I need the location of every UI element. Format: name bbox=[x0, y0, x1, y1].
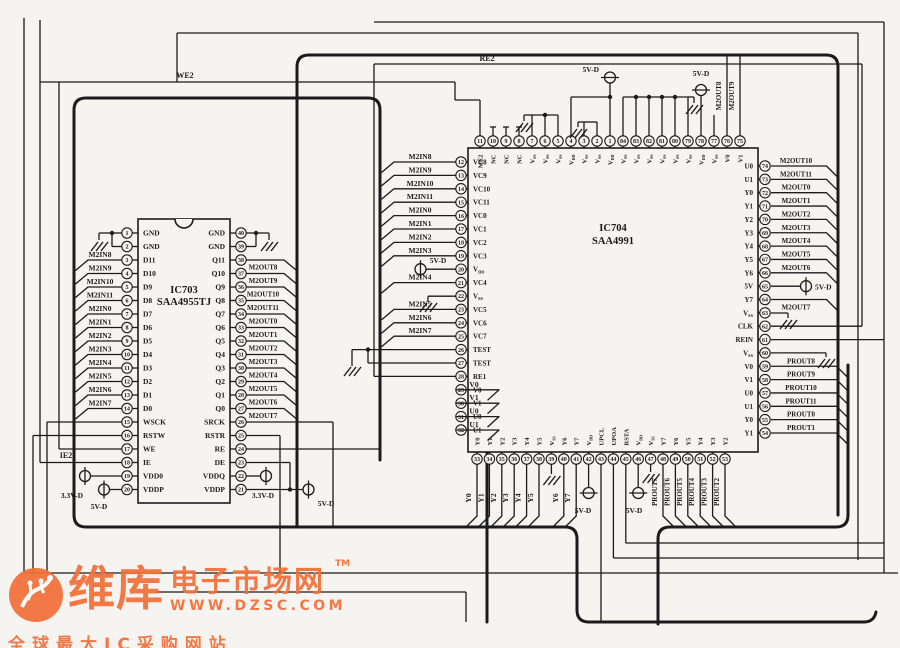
pin-number: 4 bbox=[570, 139, 573, 145]
net-label: M2OUT6 bbox=[249, 399, 278, 407]
pin-number: 61 bbox=[762, 338, 768, 344]
watermark-brand: 维库 bbox=[68, 561, 164, 619]
pin-name: Y6 bbox=[673, 437, 680, 446]
pin-number: 78 bbox=[698, 139, 704, 145]
pin-name: VC7 bbox=[473, 333, 487, 341]
pin-number: 32 bbox=[458, 428, 464, 434]
pin-number: 56 bbox=[762, 405, 768, 411]
pin-name: Q9 bbox=[215, 283, 225, 292]
pin-number: 37 bbox=[238, 272, 244, 278]
pin-number: 42 bbox=[586, 457, 592, 463]
pin-name: GND bbox=[143, 229, 160, 238]
pin-number: 35 bbox=[238, 299, 244, 305]
pin-name: Q0 bbox=[215, 404, 225, 413]
supply-icon bbox=[80, 467, 91, 485]
net-label: PROUT10 bbox=[785, 384, 817, 392]
net-label: M2OUT5 bbox=[249, 385, 278, 393]
pin-name: VDD0 bbox=[143, 472, 163, 481]
pin-number: 19 bbox=[124, 474, 130, 480]
net-label: M2IN7 bbox=[409, 326, 432, 335]
net-label: V0 bbox=[469, 380, 478, 389]
pin-number: 83 bbox=[633, 139, 639, 145]
net-label: M2IN9 bbox=[89, 264, 112, 273]
pin-name: VC10 bbox=[473, 185, 491, 193]
pin-number: 31 bbox=[238, 353, 244, 359]
pin-name: VC6 bbox=[473, 319, 487, 327]
pin-number: 5 bbox=[557, 139, 560, 145]
net-label: Y3 bbox=[501, 493, 510, 502]
pin-name: U0 bbox=[744, 389, 753, 397]
net-label: M2OUT6 bbox=[782, 264, 811, 272]
schematic-canvas: IC703SAA4955TJIC704SAA49911GND2GND3D11M2… bbox=[0, 0, 900, 648]
net-label: M2IN4 bbox=[89, 358, 112, 367]
junction-dot bbox=[673, 95, 677, 99]
pin-number: 1 bbox=[126, 231, 129, 237]
pin-number: 40 bbox=[238, 231, 244, 237]
supply-icon bbox=[601, 72, 619, 83]
wire bbox=[725, 465, 736, 528]
net-label: M2OUT0 bbox=[782, 184, 811, 192]
pin-number: 31 bbox=[458, 415, 464, 421]
supply-label: 3.3V-D bbox=[252, 491, 275, 500]
supply-label: 3.3V-D bbox=[61, 491, 84, 500]
pin-name: Y2 bbox=[723, 438, 730, 446]
pin-number: 21 bbox=[458, 281, 464, 287]
pin-number: 40 bbox=[561, 457, 567, 463]
supply-label: 5V-D bbox=[575, 506, 592, 515]
wire bbox=[382, 336, 456, 347]
pin-number: 74 bbox=[762, 164, 768, 170]
pin-name: V1 bbox=[744, 376, 753, 384]
pin-number: 77 bbox=[711, 139, 717, 145]
net-label: M2OUT11 bbox=[247, 304, 279, 312]
net-label: M2OUT7 bbox=[782, 304, 811, 312]
pin-number: 33 bbox=[474, 457, 480, 463]
pin-name: VC5 bbox=[473, 306, 487, 314]
pin-number: 6 bbox=[544, 139, 547, 145]
pin-number: 39 bbox=[238, 245, 244, 251]
pin-name: Y5 bbox=[744, 256, 753, 264]
pin-number: 22 bbox=[238, 474, 244, 480]
pin-name: Y0 bbox=[744, 416, 753, 424]
dzsc-logo-icon bbox=[8, 567, 64, 627]
pin-name: ME2 bbox=[478, 155, 485, 169]
pin-number: 32 bbox=[238, 339, 244, 345]
pin-number: 11 bbox=[477, 139, 483, 145]
pin-number: 54 bbox=[762, 431, 768, 437]
pin-number: 76 bbox=[724, 139, 730, 145]
pin-name: Q5 bbox=[215, 337, 225, 346]
pin-name: VDDP bbox=[143, 485, 164, 494]
pin-name: Y3 bbox=[744, 229, 753, 237]
net-label: Y0 bbox=[464, 493, 473, 502]
pin-name: VC1 bbox=[473, 226, 487, 234]
net-label: RE2 bbox=[479, 54, 494, 63]
pin-name: D0 bbox=[143, 404, 152, 413]
pin-number: 11 bbox=[124, 366, 130, 372]
pin-name: Q3 bbox=[215, 364, 225, 373]
pin-name: Q11 bbox=[212, 256, 225, 265]
pin-name: Y6 bbox=[744, 269, 753, 277]
net-label: Y5 bbox=[526, 493, 535, 502]
pin-name: Q2 bbox=[215, 377, 225, 386]
supply-icon bbox=[580, 488, 598, 499]
net-label: PROUT9 bbox=[787, 371, 816, 379]
pin-number: 47 bbox=[648, 457, 654, 463]
net-label: M2OUT2 bbox=[249, 345, 278, 353]
pin-number: 14 bbox=[124, 407, 130, 413]
pin-number: 25 bbox=[238, 434, 244, 440]
supply-label: 5V-D bbox=[582, 65, 599, 74]
pin-number: 58 bbox=[762, 378, 768, 384]
pin-number: 18 bbox=[458, 241, 464, 247]
net-label: M2IN7 bbox=[89, 399, 112, 408]
pin-number: 37 bbox=[524, 457, 530, 463]
net-label: M2OUT3 bbox=[782, 224, 811, 232]
pin-number: 30 bbox=[238, 366, 244, 372]
pin-name: VC11 bbox=[473, 199, 490, 207]
pin-number: 8 bbox=[126, 326, 129, 332]
pin-number: 46 bbox=[635, 457, 641, 463]
pin-number: 79 bbox=[685, 139, 691, 145]
pin-number: 16 bbox=[124, 434, 130, 440]
net-label: M2OUT9 bbox=[728, 81, 736, 110]
pin-name: Q6 bbox=[215, 323, 225, 332]
pin-number: 1 bbox=[609, 139, 612, 145]
net-label: M2OUT10 bbox=[247, 291, 280, 299]
pin-number: 35 bbox=[499, 457, 505, 463]
pin-number: 25 bbox=[458, 334, 464, 340]
pin-number: 26 bbox=[238, 420, 244, 426]
pin-name: Y1 bbox=[744, 430, 753, 438]
pin-number: 45 bbox=[623, 457, 629, 463]
pin-number: 67 bbox=[762, 258, 768, 264]
net-label: M2IN0 bbox=[409, 206, 432, 215]
pin-name: 5V bbox=[744, 283, 753, 291]
net-label: PROUT11 bbox=[785, 397, 817, 405]
pin-name: GND bbox=[143, 242, 160, 251]
net-label: M2IN10 bbox=[407, 179, 434, 188]
net-label: PROUT6 bbox=[663, 478, 671, 507]
pin-name: Y1 bbox=[744, 203, 753, 211]
schematic-page: IC703SAA4955TJIC704SAA49911GND2GND3D11M2… bbox=[0, 0, 900, 648]
pin-number: 9 bbox=[505, 139, 508, 145]
pin-number: 80 bbox=[672, 139, 678, 145]
pin-name: Y7 bbox=[661, 437, 668, 446]
pin-name: NC bbox=[504, 154, 511, 164]
ic703-part: SAA4955TJ bbox=[157, 297, 211, 308]
pin-number: 15 bbox=[458, 200, 464, 206]
net-label: M2IN2 bbox=[89, 331, 112, 340]
net-label: PROUT5 bbox=[676, 478, 684, 507]
supply-icon bbox=[692, 85, 710, 96]
junction-dot bbox=[254, 231, 258, 235]
pin-number: 24 bbox=[458, 321, 464, 327]
pin-name: D10 bbox=[143, 269, 156, 278]
wire bbox=[382, 283, 456, 294]
pin-number: 43 bbox=[598, 457, 604, 463]
pin-name: Y7 bbox=[744, 296, 753, 304]
pin-number: 7 bbox=[531, 139, 534, 145]
net-label: WE2 bbox=[176, 71, 193, 80]
ground-icon bbox=[780, 320, 797, 329]
pin-number: 55 bbox=[762, 418, 768, 424]
pin-name: Y3 bbox=[710, 437, 717, 446]
pin-name: Y2 bbox=[744, 216, 753, 224]
pin-name: VC2 bbox=[473, 239, 487, 247]
net-label: U1 bbox=[469, 420, 478, 429]
net-label: M2OUT9 bbox=[249, 277, 278, 285]
pin-number: 69 bbox=[762, 231, 768, 237]
supply-label: 5V-D bbox=[626, 506, 643, 515]
watermark-tagline: 全球最大IC采购网站 bbox=[8, 630, 348, 648]
net-label: M2OUT10 bbox=[780, 157, 813, 165]
pin-name: D7 bbox=[143, 310, 152, 319]
net-label: M2OUT5 bbox=[782, 250, 811, 258]
watermark-tm: TM bbox=[335, 559, 350, 569]
pin-number: 23 bbox=[238, 461, 244, 467]
supply-icon bbox=[629, 488, 647, 499]
net-label: M2OUT4 bbox=[249, 372, 278, 380]
pin-name: Y0 bbox=[744, 189, 753, 197]
net-label: Y6 bbox=[551, 493, 560, 502]
pin-number: 51 bbox=[697, 457, 703, 463]
pin-number: 12 bbox=[124, 380, 130, 386]
pin-name: D9 bbox=[143, 283, 152, 292]
pin-name: RSTR bbox=[205, 431, 226, 440]
pin-name: D5 bbox=[143, 337, 152, 346]
pin-number: 17 bbox=[458, 227, 464, 233]
pin-name: UPOA bbox=[611, 427, 618, 446]
pin-name: Y6 bbox=[561, 437, 568, 446]
pin-name: UPCL bbox=[599, 427, 606, 445]
pin-number: 49 bbox=[672, 457, 678, 463]
net-label: M2OUT4 bbox=[782, 237, 811, 245]
pin-number: 57 bbox=[762, 391, 768, 397]
net-label: U0 bbox=[469, 407, 478, 416]
pin-number: 29 bbox=[458, 388, 464, 394]
junction-dot bbox=[543, 113, 547, 117]
net-label: M2OUT2 bbox=[782, 210, 811, 218]
net-label: Y2 bbox=[489, 493, 498, 502]
pin-number: 29 bbox=[238, 380, 244, 386]
pin-number: 10 bbox=[490, 139, 496, 145]
pin-number: 52 bbox=[710, 457, 716, 463]
pin-number: 2 bbox=[596, 139, 599, 145]
supply-label: 5V-D bbox=[91, 502, 108, 511]
pin-number: 13 bbox=[458, 174, 464, 180]
pin-number: 63 bbox=[762, 311, 768, 317]
pin-number: 20 bbox=[124, 488, 130, 494]
supply-label: 5V-D bbox=[318, 499, 335, 508]
pin-number: 59 bbox=[762, 364, 768, 370]
pin-number: 71 bbox=[762, 204, 768, 210]
net-label: PROUT2 bbox=[713, 478, 721, 507]
pin-number: 28 bbox=[458, 375, 464, 381]
pin-number: 66 bbox=[762, 271, 768, 277]
pin-number: 73 bbox=[762, 178, 768, 184]
net-label: M2OUT3 bbox=[249, 358, 278, 366]
pin-number: 34 bbox=[238, 312, 244, 318]
wire bbox=[771, 433, 848, 444]
pin-number: 24 bbox=[238, 447, 244, 453]
pin-name: Y5 bbox=[685, 437, 692, 446]
pin-name: WSCK bbox=[143, 418, 166, 427]
pin-name: NC bbox=[491, 154, 498, 164]
junction-dot bbox=[110, 231, 114, 235]
pin-number: 50 bbox=[685, 457, 691, 463]
pin-name: GND bbox=[208, 242, 225, 251]
pin-name: Q1 bbox=[215, 391, 225, 400]
pin-number: 44 bbox=[610, 457, 616, 463]
pin-number: 22 bbox=[458, 294, 464, 300]
pin-number: 19 bbox=[458, 254, 464, 260]
net-label: M2IN11 bbox=[407, 192, 434, 201]
pin-number: 8 bbox=[518, 139, 521, 145]
pin-number: 9 bbox=[126, 339, 129, 345]
net-label: Y1 bbox=[476, 493, 485, 502]
pin-number: 39 bbox=[548, 457, 554, 463]
pin-name: V0 bbox=[725, 155, 732, 163]
pin-number: 33 bbox=[238, 326, 244, 332]
net-label: M2OUT8 bbox=[715, 81, 723, 110]
pin-name: VC4 bbox=[473, 279, 487, 287]
pin-number: 7 bbox=[126, 312, 129, 318]
net-label: M2IN3 bbox=[409, 246, 432, 255]
pin-number: 27 bbox=[458, 361, 464, 367]
net-label: M2IN8 bbox=[409, 152, 432, 161]
junction-dot bbox=[288, 487, 292, 491]
pin-number: 28 bbox=[238, 393, 244, 399]
pin-number: 75 bbox=[737, 139, 743, 145]
pin-number: 27 bbox=[238, 407, 244, 413]
pin-number: 12 bbox=[458, 160, 464, 166]
net-label: M2IN1 bbox=[409, 219, 432, 228]
pin-name: D2 bbox=[143, 377, 152, 386]
pin-name: Y4 bbox=[744, 243, 753, 251]
pin-number: 60 bbox=[762, 351, 768, 357]
pin-name: Q7 bbox=[215, 310, 225, 319]
pin-name: IE bbox=[143, 458, 151, 467]
pin-name: V0 bbox=[744, 363, 753, 371]
pin-name: GND bbox=[208, 229, 225, 238]
pin-name: Q4 bbox=[215, 350, 225, 359]
ic704-ref: IC704 bbox=[599, 223, 627, 234]
pin-name: RE bbox=[215, 445, 225, 454]
net-label: M2IN2 bbox=[409, 232, 432, 241]
watermark-url: WWW.DZSC.COM bbox=[170, 598, 346, 614]
net-label: M2OUT1 bbox=[249, 331, 278, 339]
pin-name: Y4 bbox=[524, 437, 531, 446]
pin-name: REIN bbox=[735, 336, 753, 344]
pin-number: 2 bbox=[126, 245, 129, 251]
pin-name: DE bbox=[215, 458, 225, 467]
pin-name: VC0 bbox=[473, 212, 487, 220]
pin-number: 70 bbox=[762, 218, 768, 224]
ground-icon bbox=[261, 242, 278, 251]
pin-number: 36 bbox=[511, 457, 517, 463]
pin-name: D8 bbox=[143, 296, 152, 305]
junction-dot bbox=[647, 95, 651, 99]
pin-number: 6 bbox=[126, 299, 129, 305]
net-label: M2IN8 bbox=[89, 250, 112, 259]
pin-name: VC3 bbox=[473, 252, 487, 260]
wire bbox=[76, 409, 122, 420]
net-label: M2IN1 bbox=[89, 318, 112, 327]
ground-icon bbox=[543, 476, 560, 485]
supply-icon bbox=[99, 481, 110, 499]
pin-number: 36 bbox=[238, 285, 244, 291]
net-label: PROUT1 bbox=[787, 424, 816, 432]
net-label: PROUT8 bbox=[787, 357, 816, 365]
net-label: V1 bbox=[469, 393, 478, 402]
pin-name: Y1 bbox=[487, 438, 494, 446]
ic704-body bbox=[468, 148, 758, 452]
net-label: PROUT3 bbox=[701, 478, 709, 507]
ic703-ref: IC703 bbox=[170, 285, 197, 296]
pin-number: 20 bbox=[458, 267, 464, 273]
pin-name: D1 bbox=[143, 391, 152, 400]
supply-icon bbox=[801, 277, 812, 295]
supply-label: 5V-D bbox=[815, 283, 832, 292]
pin-name: D4 bbox=[143, 350, 152, 359]
net-label: Y7 bbox=[563, 493, 572, 502]
pin-name: V1 bbox=[738, 155, 745, 163]
watermark: 维库 电子市场网 TM WWW.DZSC.COM 全球最大IC采购网站 bbox=[8, 561, 348, 648]
junction-dot bbox=[608, 95, 612, 99]
pin-name: U0 bbox=[744, 163, 753, 171]
pin-name: RSTA bbox=[623, 428, 630, 445]
net-label: M2IN9 bbox=[409, 165, 432, 174]
pin-number: 38 bbox=[536, 457, 542, 463]
pin-name: RSTW bbox=[143, 431, 166, 440]
pin-number: 53 bbox=[722, 457, 728, 463]
pin-name: TEST bbox=[473, 346, 491, 354]
pin-number: 65 bbox=[762, 284, 768, 290]
net-label: M2IN11 bbox=[87, 291, 114, 300]
pin-name: D6 bbox=[143, 323, 152, 332]
net-label: M2OUT0 bbox=[249, 318, 278, 326]
pin-number: 64 bbox=[762, 298, 768, 304]
pin-name: Q8 bbox=[215, 296, 225, 305]
pin-number: 13 bbox=[124, 393, 130, 399]
pin-number: 38 bbox=[238, 258, 244, 264]
pin-number: 3 bbox=[583, 139, 586, 145]
pin-name: U1 bbox=[744, 403, 753, 411]
pin-name: D11 bbox=[143, 256, 156, 265]
pin-number: 48 bbox=[660, 457, 666, 463]
net-label: IE2 bbox=[60, 451, 72, 460]
net-label: M2OUT8 bbox=[249, 264, 278, 272]
pin-name: CLK bbox=[738, 323, 754, 331]
pin-name: Y4 bbox=[698, 437, 705, 446]
pin-name: Y7 bbox=[574, 437, 581, 446]
pin-number: 68 bbox=[762, 244, 768, 250]
pin-number: 21 bbox=[238, 488, 244, 494]
pin-number: 34 bbox=[486, 457, 492, 463]
pin-name: Y3 bbox=[512, 437, 519, 446]
pin-number: 15 bbox=[124, 420, 130, 426]
net-label: M2IN6 bbox=[89, 385, 112, 394]
pin-name: VC9 bbox=[473, 172, 487, 180]
pin-number: 16 bbox=[458, 214, 464, 220]
pin-number: 72 bbox=[762, 191, 768, 197]
pin-name: NC bbox=[517, 154, 524, 164]
pin-name: TEST bbox=[473, 360, 491, 368]
net-label: PROUT7 bbox=[651, 478, 659, 507]
net-label: PROUT0 bbox=[787, 411, 816, 419]
pin-name: Y2 bbox=[499, 438, 506, 446]
